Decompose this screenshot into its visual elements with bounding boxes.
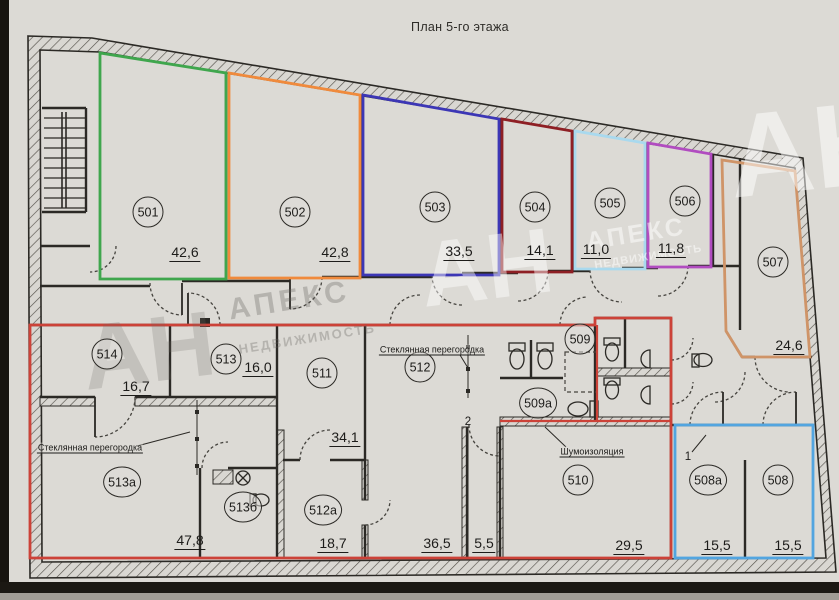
exterior-walls: [28, 36, 836, 578]
room-507-number: 507: [758, 247, 789, 278]
photo-edge-bottom: [0, 582, 839, 593]
door-mark-1: 1: [685, 451, 691, 463]
room-511-area: 34,1: [329, 429, 360, 447]
room-508a-number: 508а: [689, 465, 727, 496]
photo-edge-under: [0, 593, 839, 600]
shaft-dashed: [565, 352, 597, 392]
door-mark-2: 2: [465, 416, 471, 428]
room-508-area: 15,5: [772, 537, 803, 555]
page-title: План 5-го этажа: [411, 20, 509, 34]
unit-501-outline: [100, 53, 226, 279]
staircase: [44, 112, 86, 208]
room-509-number: 509: [565, 324, 596, 355]
room-505-number: 505: [595, 188, 626, 219]
room-510-area: 29,5: [613, 537, 644, 555]
room-514-number: 514: [92, 339, 123, 370]
room-513-number: 513: [211, 344, 242, 375]
room-513b-number: 513б: [224, 492, 262, 523]
door-leaves: [95, 277, 796, 437]
room-508-number: 508: [763, 465, 794, 496]
room-512a-number: 512а: [304, 495, 342, 526]
room-511-number: 511: [307, 358, 338, 389]
room-503-number: 503: [420, 192, 451, 223]
glass-partition-label-left: Стеклянная перегородка: [37, 443, 143, 454]
room-507-area: 24,6: [773, 337, 804, 355]
room-501-number: 501: [133, 197, 164, 228]
room-512a-area: 18,7: [317, 535, 348, 553]
room-508a-area: 15,5: [701, 537, 732, 555]
room-513a-area: 47,8: [174, 532, 205, 550]
room-505-area: 11,0: [581, 241, 611, 259]
unit-503-outline: [363, 95, 499, 275]
room-502-number: 502: [280, 197, 311, 228]
glass-partition-label-center: Стеклянная перегородка: [379, 345, 485, 356]
room-512-area: 36,5: [421, 535, 452, 553]
room-504-area: 14,1: [524, 242, 555, 260]
floor-plan-photo: АН АН АН АПЕКС НЕДВИЖИМОСТЬ АПЕКС НЕДВИЖ…: [0, 0, 839, 600]
corridor-area: 5,5: [472, 535, 495, 553]
room-513-area: 16,0: [242, 359, 273, 377]
soundproofing-label: Шумоизоляция: [560, 447, 625, 458]
room-512-number: 512: [405, 352, 436, 383]
room-509a-number: 509а: [519, 388, 557, 419]
room-506-area: 11,8: [656, 240, 686, 258]
interior-hatched-walls: [40, 368, 671, 558]
room-513a-number: 513а: [103, 467, 141, 498]
room-506-number: 506: [670, 186, 701, 217]
room-510-number: 510: [563, 465, 594, 496]
room-501-area: 42,6: [169, 244, 200, 262]
room-514-area: 16,7: [120, 378, 151, 396]
floor-plan-drawing: [0, 0, 839, 600]
room-503-area: 33,5: [443, 243, 474, 261]
room-504-number: 504: [520, 192, 551, 223]
room-502-area: 42,8: [319, 244, 350, 262]
photo-edge-left: [0, 0, 9, 600]
